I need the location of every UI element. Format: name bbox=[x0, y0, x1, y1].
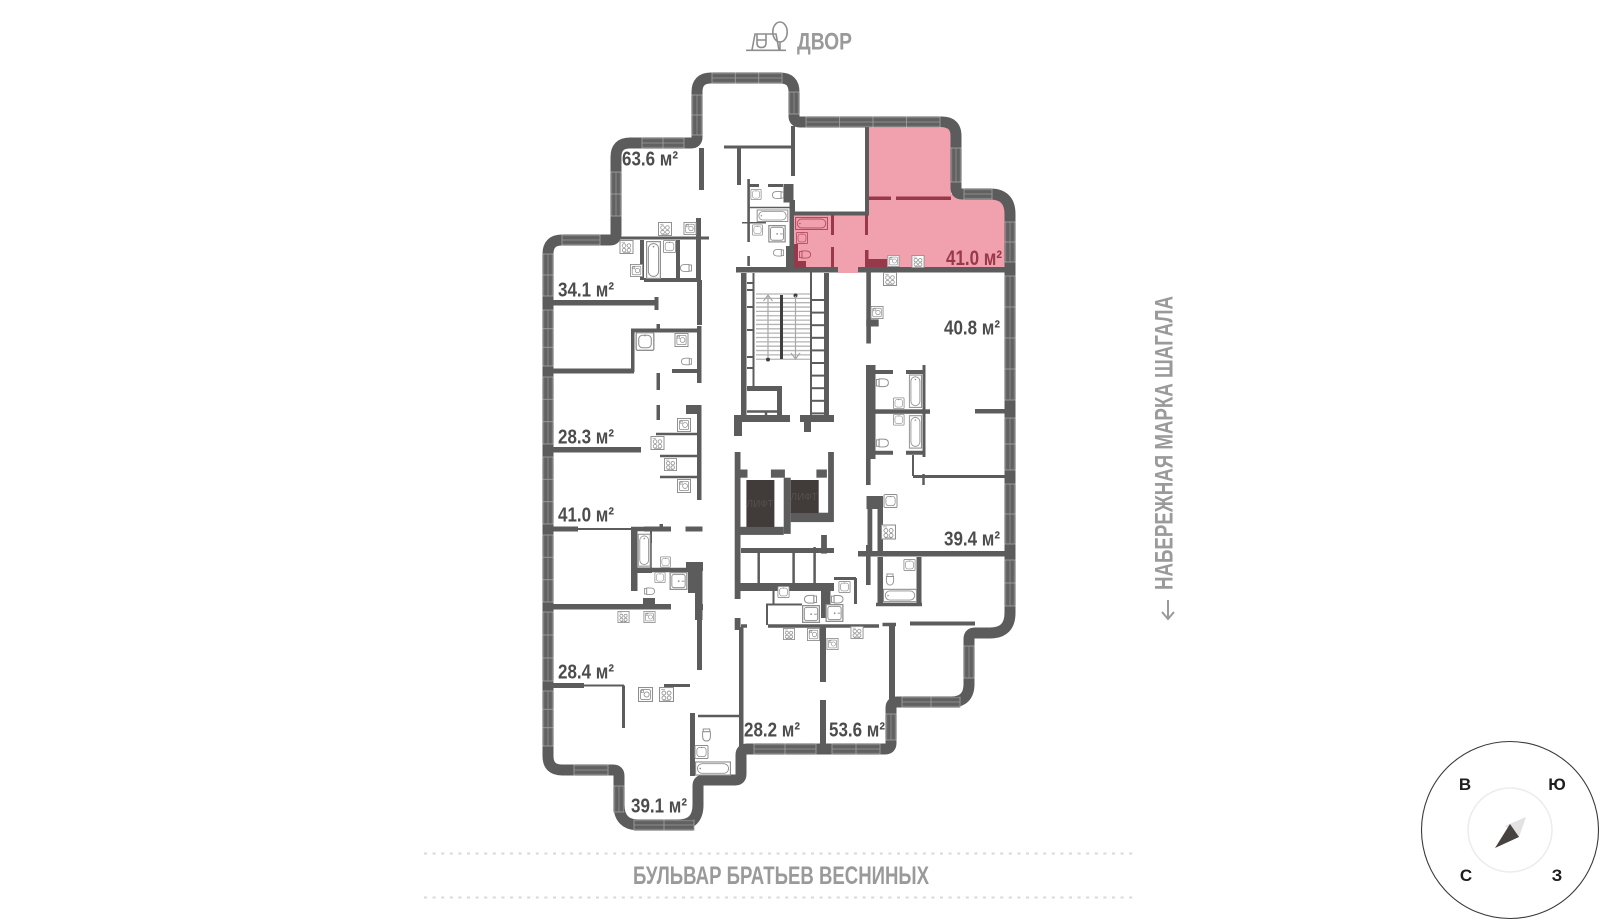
svg-text:39.4 м²: 39.4 м² bbox=[944, 529, 1000, 551]
svg-text:Ю: Ю bbox=[1548, 775, 1566, 794]
svg-text:З: З bbox=[1552, 866, 1563, 885]
svg-text:28.2 м²: 28.2 м² bbox=[744, 720, 800, 742]
svg-text:ЛИФТ: ЛИФТ bbox=[747, 499, 774, 510]
svg-text:ДВОР: ДВОР bbox=[797, 29, 852, 56]
svg-text:С: С bbox=[1460, 866, 1472, 885]
svg-text:28.3 м²: 28.3 м² bbox=[558, 427, 614, 449]
svg-text:28.4 м²: 28.4 м² bbox=[558, 662, 614, 684]
svg-text:41.0 м²: 41.0 м² bbox=[946, 247, 1002, 270]
svg-text:НАБЕРЕЖНАЯ МАРКА ШАГАЛА: НАБЕРЕЖНАЯ МАРКА ШАГАЛА bbox=[1151, 296, 1179, 590]
svg-text:34.1 м²: 34.1 м² bbox=[558, 280, 614, 302]
svg-text:В: В bbox=[1459, 775, 1471, 794]
svg-text:39.1 м²: 39.1 м² bbox=[631, 796, 687, 818]
svg-text:41.0 м²: 41.0 м² bbox=[558, 505, 614, 527]
svg-text:БУЛЬВАР БРАТЬЕВ ВЕСНИНЫХ: БУЛЬВАР БРАТЬЕВ ВЕСНИНЫХ bbox=[633, 862, 929, 890]
svg-text:63.6 м²: 63.6 м² bbox=[622, 149, 678, 171]
svg-text:53.6 м²: 53.6 м² bbox=[829, 720, 885, 742]
svg-text:ЛИФТ: ЛИФТ bbox=[791, 492, 818, 503]
svg-text:40.8 м²: 40.8 м² bbox=[944, 318, 1000, 340]
